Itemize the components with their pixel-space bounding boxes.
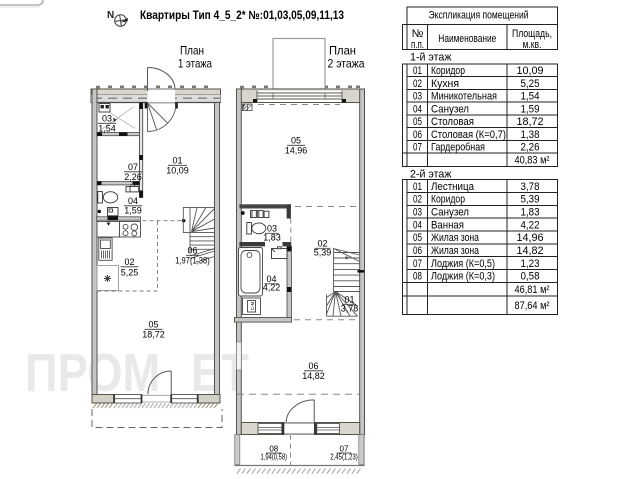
svg-text:Экспликация помещений: Экспликация помещений xyxy=(429,10,529,22)
svg-text:1,23: 1,23 xyxy=(521,258,540,270)
svg-text:5,25: 5,25 xyxy=(521,78,540,90)
svg-text:Миникотельная: Миникотельная xyxy=(431,91,497,103)
svg-text:40,83 м²: 40,83 м² xyxy=(515,155,550,167)
svg-text:07: 07 xyxy=(413,258,422,270)
svg-text:5,25: 5,25 xyxy=(121,268,139,278)
svg-text:Лестница: Лестница xyxy=(431,181,475,193)
svg-text:04: 04 xyxy=(413,103,422,115)
svg-text:п.п.: п.п. xyxy=(411,39,424,51)
svg-text:5,39: 5,39 xyxy=(521,194,540,206)
svg-text:0,58: 0,58 xyxy=(521,271,540,283)
svg-text:План: План xyxy=(180,44,204,58)
svg-text:01: 01 xyxy=(413,181,422,193)
svg-text:м.кв.: м.кв. xyxy=(523,39,542,51)
svg-text:2,26: 2,26 xyxy=(124,172,142,182)
svg-text:14,82: 14,82 xyxy=(302,371,325,381)
svg-text:План: План xyxy=(329,44,356,58)
svg-text:14,82: 14,82 xyxy=(517,245,544,257)
svg-text:Санузел: Санузел xyxy=(431,207,469,219)
svg-text:5,39: 5,39 xyxy=(314,248,332,258)
svg-text:Санузел: Санузел xyxy=(431,103,469,115)
svg-text:1,54: 1,54 xyxy=(521,91,540,103)
svg-text:03: 03 xyxy=(413,207,422,219)
svg-text:10,09: 10,09 xyxy=(166,166,189,176)
svg-text:Ванная: Ванная xyxy=(431,219,464,231)
svg-text:05: 05 xyxy=(413,116,422,128)
svg-text:18,72: 18,72 xyxy=(517,116,544,128)
svg-text:Гардеробная: Гардеробная xyxy=(431,142,485,154)
svg-text:Лоджия (К=0,3): Лоджия (К=0,3) xyxy=(431,271,495,283)
svg-text:03: 03 xyxy=(102,114,112,124)
svg-text:05: 05 xyxy=(291,136,301,146)
svg-text:Столовая: Столовая xyxy=(431,116,474,128)
svg-text:3,78: 3,78 xyxy=(521,181,540,193)
svg-text:03: 03 xyxy=(413,91,422,103)
svg-text:1 этажа: 1 этажа xyxy=(178,57,212,71)
svg-text:Жилая зона: Жилая зона xyxy=(431,232,480,244)
svg-text:1,83: 1,83 xyxy=(263,233,281,243)
svg-text:05: 05 xyxy=(413,232,422,244)
svg-text:4,22: 4,22 xyxy=(263,283,281,293)
svg-text:Коридор: Коридор xyxy=(431,194,465,206)
svg-text:01: 01 xyxy=(172,156,182,166)
svg-text:1,83: 1,83 xyxy=(521,207,540,219)
svg-text:06: 06 xyxy=(308,361,318,371)
svg-text:Кухня: Кухня xyxy=(431,78,459,90)
svg-text:С-М: С-М xyxy=(250,302,255,311)
svg-text:1,59: 1,59 xyxy=(521,103,540,115)
svg-text:3,78: 3,78 xyxy=(341,304,359,314)
svg-text:1,54: 1,54 xyxy=(98,124,116,134)
svg-text:1-й этаж: 1-й этаж xyxy=(410,51,452,63)
svg-text:05: 05 xyxy=(148,320,158,330)
svg-text:07: 07 xyxy=(128,162,138,172)
svg-text:06: 06 xyxy=(413,245,422,257)
svg-text:01: 01 xyxy=(413,65,422,77)
svg-text:Жилая зона: Жилая зона xyxy=(431,245,480,257)
svg-text:06: 06 xyxy=(413,129,422,141)
svg-text:N: N xyxy=(107,10,114,21)
svg-text:4,22: 4,22 xyxy=(521,219,540,231)
svg-text:06: 06 xyxy=(187,246,197,256)
svg-text:Наименование: Наименование xyxy=(438,33,496,45)
svg-text:07: 07 xyxy=(413,142,422,154)
svg-text:02: 02 xyxy=(413,194,422,206)
svg-text:02: 02 xyxy=(124,257,134,267)
svg-text:2 этажа: 2 этажа xyxy=(328,57,365,71)
svg-text:Лоджия (К=0,5): Лоджия (К=0,5) xyxy=(431,258,495,270)
svg-text:08: 08 xyxy=(413,271,422,283)
svg-text:1,97(1,38): 1,97(1,38) xyxy=(175,256,210,266)
svg-text:14,96: 14,96 xyxy=(285,146,308,156)
svg-text:46,81 м²: 46,81 м² xyxy=(515,284,550,296)
svg-text:Коридор: Коридор xyxy=(431,65,465,77)
svg-text:1,38: 1,38 xyxy=(521,129,540,141)
svg-text:1,59: 1,59 xyxy=(124,206,142,216)
svg-text:04: 04 xyxy=(128,196,138,206)
svg-text:02: 02 xyxy=(413,78,422,90)
svg-text:14,96: 14,96 xyxy=(517,232,544,244)
svg-text:2-й этаж: 2-й этаж xyxy=(410,168,452,180)
svg-text:87,64 м²: 87,64 м² xyxy=(515,300,550,312)
svg-text:2,26: 2,26 xyxy=(521,142,540,154)
svg-text:18,72: 18,72 xyxy=(142,330,165,340)
svg-text:Столовая (К=0,7): Столовая (К=0,7) xyxy=(431,129,506,141)
svg-text:2,45(1,23): 2,45(1,23) xyxy=(330,453,358,462)
svg-text:1,94(0,58): 1,94(0,58) xyxy=(261,453,288,462)
svg-text:10,09: 10,09 xyxy=(517,65,544,77)
svg-text:04: 04 xyxy=(413,219,422,231)
svg-text:Квартиры Тип 4_5_2* №:01,03,05: Квартиры Тип 4_5_2* №:01,03,05,09,11,13 xyxy=(140,8,344,22)
